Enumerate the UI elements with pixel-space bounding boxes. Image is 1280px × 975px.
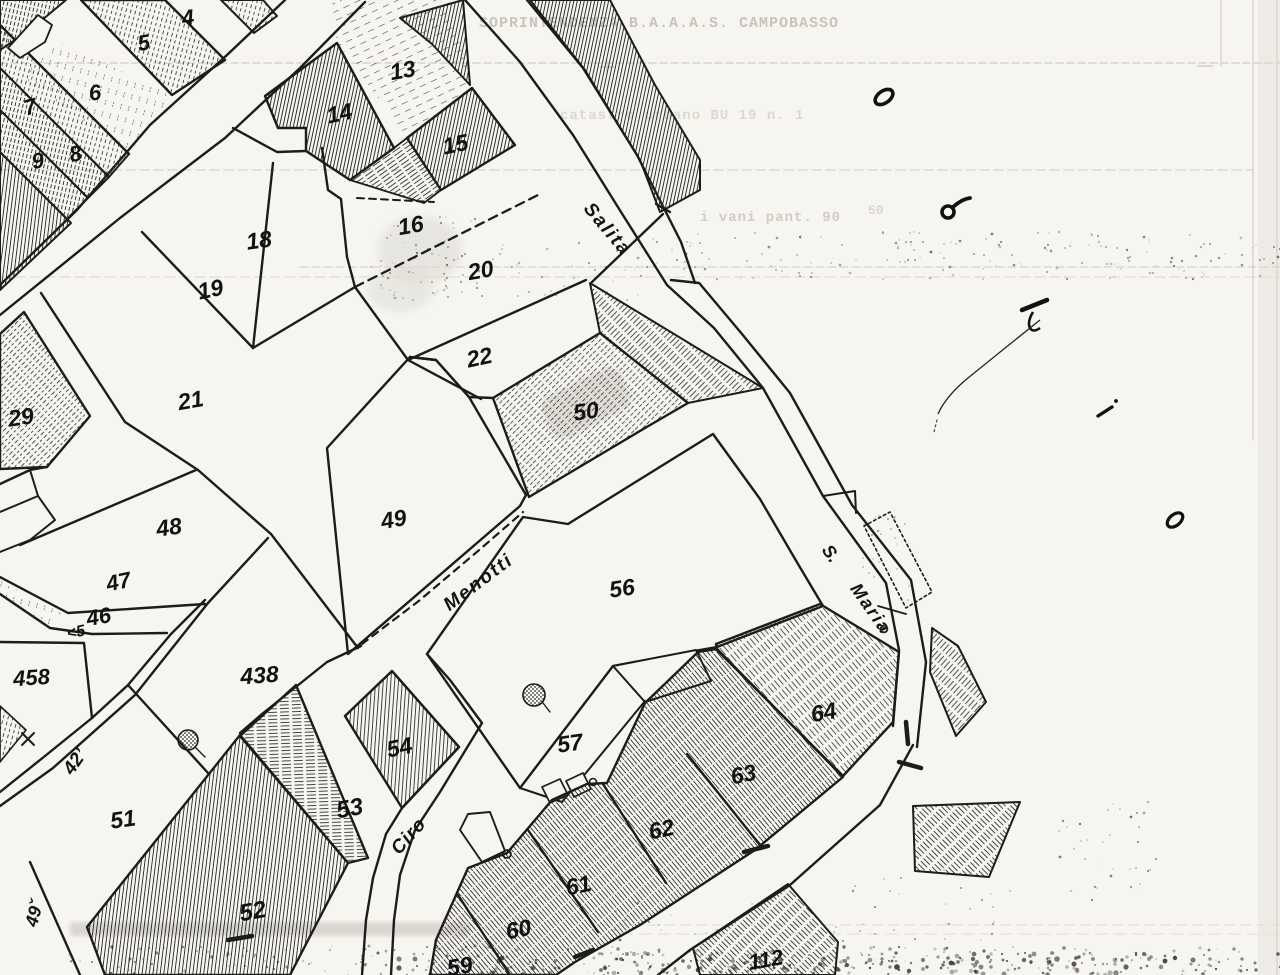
svg-text:50: 50	[868, 203, 884, 218]
svg-text:48: 48	[153, 512, 183, 541]
svg-text:458: 458	[11, 664, 51, 692]
svg-text:57: 57	[555, 728, 585, 757]
svg-text:22: 22	[463, 342, 495, 373]
svg-text:438: 438	[238, 661, 279, 690]
svg-text:61: 61	[563, 870, 593, 901]
svg-text:29: 29	[5, 402, 35, 431]
svg-text:46: 46	[83, 602, 113, 631]
svg-text:21: 21	[175, 385, 206, 415]
svg-text:catastro urbano BU 19 n. 1: catastro urbano BU 19 n. 1	[560, 108, 804, 124]
svg-text:13: 13	[388, 55, 418, 85]
svg-text:53: 53	[334, 793, 366, 824]
svg-text:SOPRINTENDENZA B.A.A.A.S.: SOPRINTENDENZA B.A.A.A.S. CAMPOBASSO	[479, 15, 839, 32]
svg-text:52: 52	[237, 896, 269, 927]
svg-text:i vani pant. 90: i vani pant. 90	[700, 210, 841, 226]
svg-text:50: 50	[571, 396, 600, 425]
svg-text:59: 59	[445, 951, 475, 975]
svg-text:49: 49	[378, 504, 409, 534]
svg-text:16: 16	[396, 210, 426, 240]
svg-text:56: 56	[607, 573, 636, 602]
svg-text:51: 51	[108, 804, 137, 833]
svg-text:18: 18	[244, 225, 273, 254]
svg-text:20: 20	[465, 255, 496, 285]
svg-text:64: 64	[809, 697, 839, 727]
